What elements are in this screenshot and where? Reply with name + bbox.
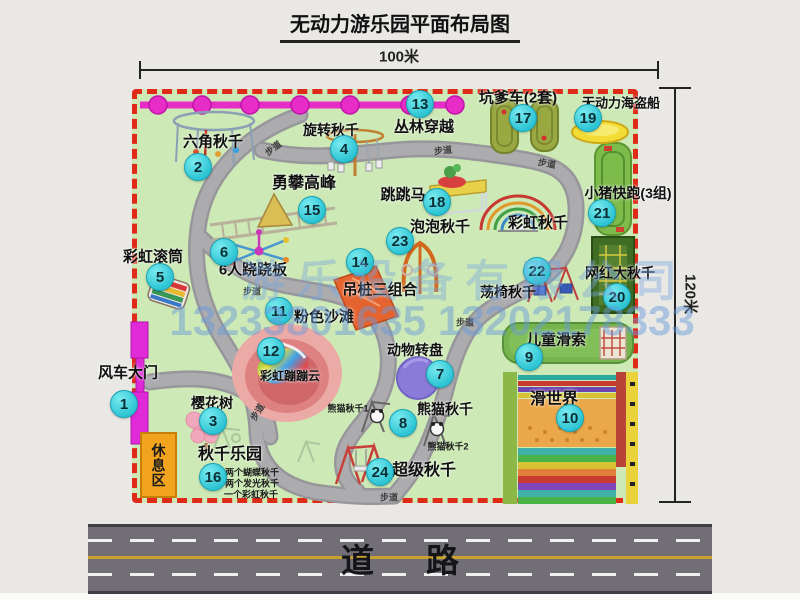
label-jungle-crossing: 丛林穿越 (394, 120, 454, 135)
badge-chair-swing: 22 (523, 257, 551, 285)
badge-pirate-ship: 19 (574, 104, 602, 132)
label-rainbow-arc-swing: 彩虹秋千 (508, 216, 568, 231)
playground-map-screenshot: 无动力游乐园平面布局图 100米 120米 (0, 0, 800, 600)
label-windmill-gate: 风车大门 (98, 366, 158, 381)
badge-windmill-gate: 1 (110, 390, 138, 418)
walkway-label-1: 步道 (262, 137, 284, 158)
badge-kids-zipline: 9 (515, 343, 543, 371)
park-label-layer: 风车大门1六角秋千2樱花树3旋转秋千4彩虹滚筒56人跷跷板6动物转盘7熊猫秋千8… (0, 0, 800, 600)
badge-pit-car: 17 (509, 104, 537, 132)
label-chair-swing: 荡椅秋千 (480, 285, 536, 299)
label-big-net-swing: 网红大秋千 (585, 266, 655, 280)
badge-rotating-swing: 4 (330, 135, 358, 163)
label-swing-park: 秋千乐园 (198, 447, 262, 463)
badge-cherry-tree: 3 (199, 407, 227, 435)
badge-rainbow-bounce-cloud: 12 (257, 337, 285, 365)
road-label: 道路 (289, 534, 511, 582)
walkway-label-2: 步道 (433, 143, 452, 158)
badge-six-person-seesaw: 6 (210, 238, 238, 266)
badge-super-swing: 24 (366, 458, 394, 486)
label-climb-peak: 勇攀高峰 (272, 176, 336, 192)
badge-animal-turntable: 7 (426, 360, 454, 388)
road-lower-margin (0, 593, 800, 600)
panda-swing-2-note: 熊猫秋千2 (427, 440, 468, 453)
label-hexagon-swing: 六角秋千 (183, 135, 243, 150)
badge-rainbow-roller: 5 (146, 263, 174, 291)
badge-climb-peak: 15 (298, 196, 326, 224)
badge-jungle-crossing: 13 (406, 90, 434, 118)
label-rotating-swing: 旋转秋千 (303, 123, 359, 137)
label-rainbow-bounce-cloud: 彩虹蹦蹦云 (260, 370, 320, 382)
badge-swing-park: 16 (199, 463, 227, 491)
badge-jumping-horse: 18 (423, 188, 451, 216)
walkway-label-7: 步道 (380, 491, 398, 504)
label-bubble-swing: 泡泡秋千 (410, 220, 470, 235)
walkway-label-3: 步道 (537, 155, 557, 171)
badge-hanging-post-combo: 14 (346, 248, 374, 276)
label-animal-turntable: 动物转盘 (387, 343, 443, 357)
badge-pink-beach: 11 (265, 297, 293, 325)
label-panda-swing: 熊猫秋千 (417, 402, 473, 416)
label-hanging-post-combo: 吊桩三组合 (342, 283, 417, 298)
label-pig-run: 小猪快跑(3组) (584, 186, 671, 200)
rest-area: 休息区 (140, 432, 177, 498)
badge-slide-world: 10 (556, 404, 584, 432)
label-pink-beach: 粉色沙滩 (294, 310, 354, 325)
badge-pig-run: 21 (588, 199, 616, 227)
label-rainbow-roller: 彩虹滚筒 (123, 250, 183, 265)
road: 道路 (88, 524, 712, 594)
badge-big-net-swing: 20 (603, 283, 631, 311)
label-pit-car: 坑爹车(2套) (479, 91, 557, 106)
walkway-label-6: 步道 (247, 401, 268, 423)
walkway-label-5: 步道 (456, 316, 474, 329)
label-super-swing: 超级秋千 (392, 463, 456, 479)
badge-hexagon-swing: 2 (184, 153, 212, 181)
swing-park-note-3: 一个彩虹秋千 (224, 488, 278, 501)
panda-swing-1-note: 熊猫秋千1 (327, 402, 368, 415)
walkway-label-4: 步道 (243, 285, 261, 298)
label-jumping-horse: 跳跳马 (380, 188, 425, 203)
badge-bubble-swing: 23 (386, 227, 414, 255)
badge-panda-swing: 8 (389, 409, 417, 437)
